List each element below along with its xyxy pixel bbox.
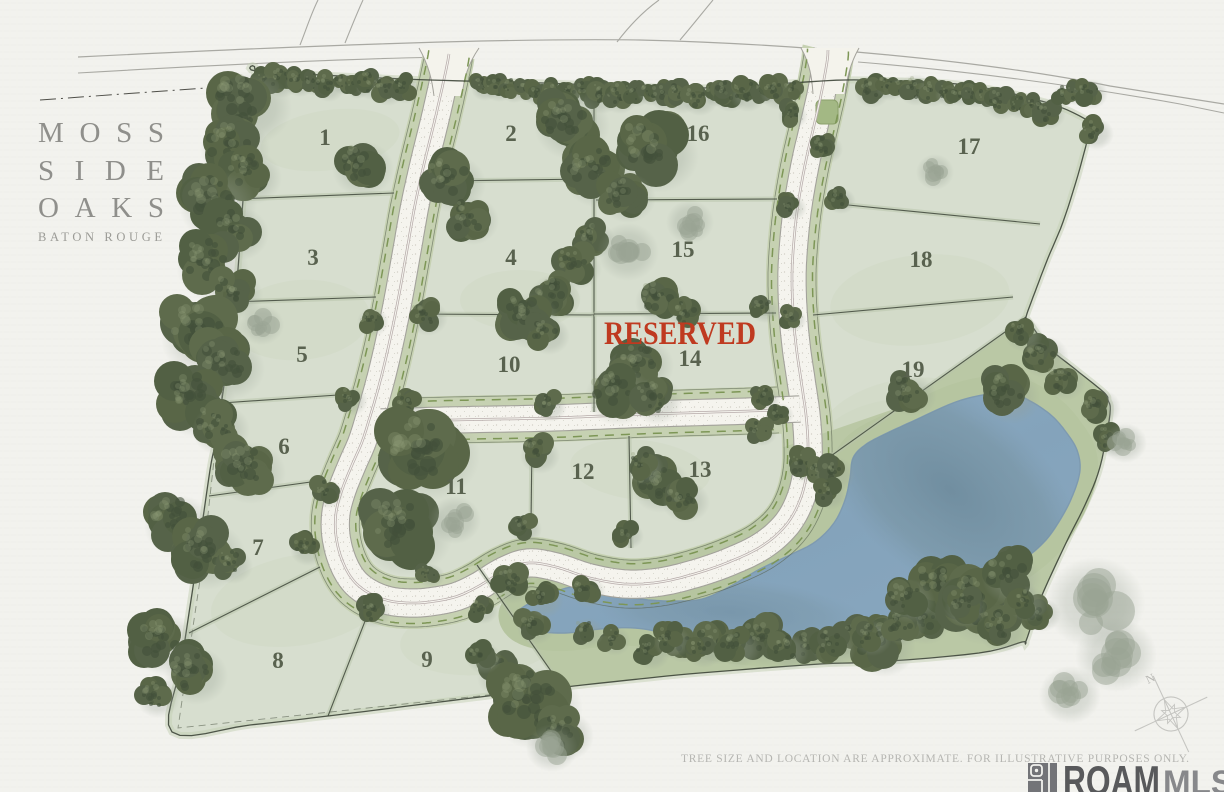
svg-text:18: 18 — [910, 247, 933, 272]
svg-text:8: 8 — [272, 648, 284, 673]
svg-text:ROAM: ROAM — [1063, 757, 1160, 792]
svg-text:12: 12 — [572, 459, 595, 484]
svg-text:16: 16 — [687, 121, 710, 146]
svg-text:BATON ROUGE: BATON ROUGE — [38, 230, 162, 244]
svg-text:17: 17 — [958, 134, 981, 159]
svg-text:10: 10 — [498, 352, 521, 377]
svg-text:MLS: MLS — [1163, 764, 1224, 792]
svg-text:RESERVED: RESERVED — [604, 316, 756, 352]
svg-text:1: 1 — [319, 125, 331, 150]
svg-text:19: 19 — [902, 357, 925, 382]
svg-text:6: 6 — [278, 434, 290, 459]
svg-text:2: 2 — [505, 121, 517, 146]
svg-text:9: 9 — [421, 647, 433, 672]
svg-text:13: 13 — [689, 457, 712, 482]
svg-text:4: 4 — [505, 245, 517, 270]
svg-text:7: 7 — [252, 535, 264, 560]
svg-text:3: 3 — [307, 245, 319, 270]
svg-text:15: 15 — [672, 237, 695, 262]
svg-text:5: 5 — [296, 342, 308, 367]
svg-text:11: 11 — [445, 474, 467, 499]
